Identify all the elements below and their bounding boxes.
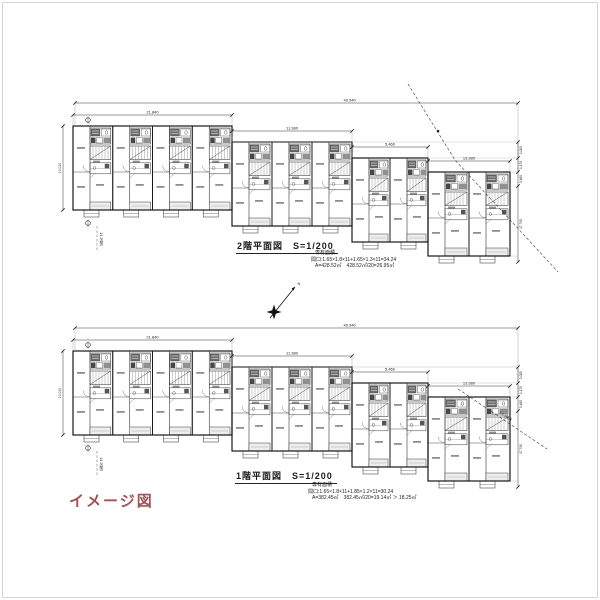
- svg-text:1.000: 1.000: [519, 146, 523, 154]
- slope-line-1f: 1:1.5傾斜: [458, 389, 547, 449]
- svg-text:5.460: 5.460: [519, 400, 523, 408]
- svg-text:40.940: 40.940: [344, 97, 357, 102]
- plan-title-1f-text: 1階平面図: [236, 471, 282, 481]
- svg-text:1:1.5傾斜: 1:1.5傾斜: [99, 457, 104, 471]
- notes-1f-calc2: A=382.45㎡ 382.45㎡/20=19.14㎡ ＞ 18.25㎡: [312, 495, 417, 502]
- svg-text:11.380: 11.380: [286, 125, 299, 130]
- svg-text:21.840: 21.840: [146, 109, 159, 114]
- boundary-line: [408, 84, 558, 272]
- svg-text:5.460: 5.460: [519, 175, 523, 183]
- plan-notes-1f: 専有面積 間口:1.65×1.8×11+1.85×1.2×11=30.24 A=…: [300, 482, 417, 502]
- svg-text:17.790: 17.790: [519, 219, 523, 229]
- svg-text:1.170: 1.170: [519, 161, 523, 169]
- svg-text:17.790: 17.790: [519, 444, 523, 454]
- svg-text:10.010: 10.010: [58, 388, 62, 398]
- plan-scale-1f: S=1/200: [292, 471, 333, 481]
- notes-2f-calc2: A=428.52㎡ 428.52㎡/20=26.95㎡: [315, 263, 396, 270]
- svg-text:N: N: [298, 281, 301, 286]
- floor-plan-1f: 21.84011.3805.46013.38040.94010.0101.000…: [58, 322, 523, 488]
- svg-text:1.170: 1.170: [519, 386, 523, 394]
- svg-text:10.010: 10.010: [58, 163, 62, 173]
- svg-text:1.000: 1.000: [519, 371, 523, 379]
- svg-text:21.840: 21.840: [146, 334, 159, 339]
- north-arrow-icon: N: [267, 281, 301, 320]
- image-caption: イメージ図: [69, 490, 154, 511]
- svg-text:1:1.5傾斜: 1:1.5傾斜: [99, 232, 104, 246]
- svg-text:11.380: 11.380: [286, 350, 299, 355]
- plan-title-2f-text: 2階平面図: [237, 241, 283, 251]
- plan-notes-2f: 専有面積 間口:1.65×1.8×11+1.65×1.3×11=34.24 A=…: [303, 250, 396, 270]
- scanned-drawing-page: { "colors": { "ink": "#1a1a1a", "thin": …: [0, 0, 600, 600]
- svg-text:40.940: 40.940: [344, 322, 357, 327]
